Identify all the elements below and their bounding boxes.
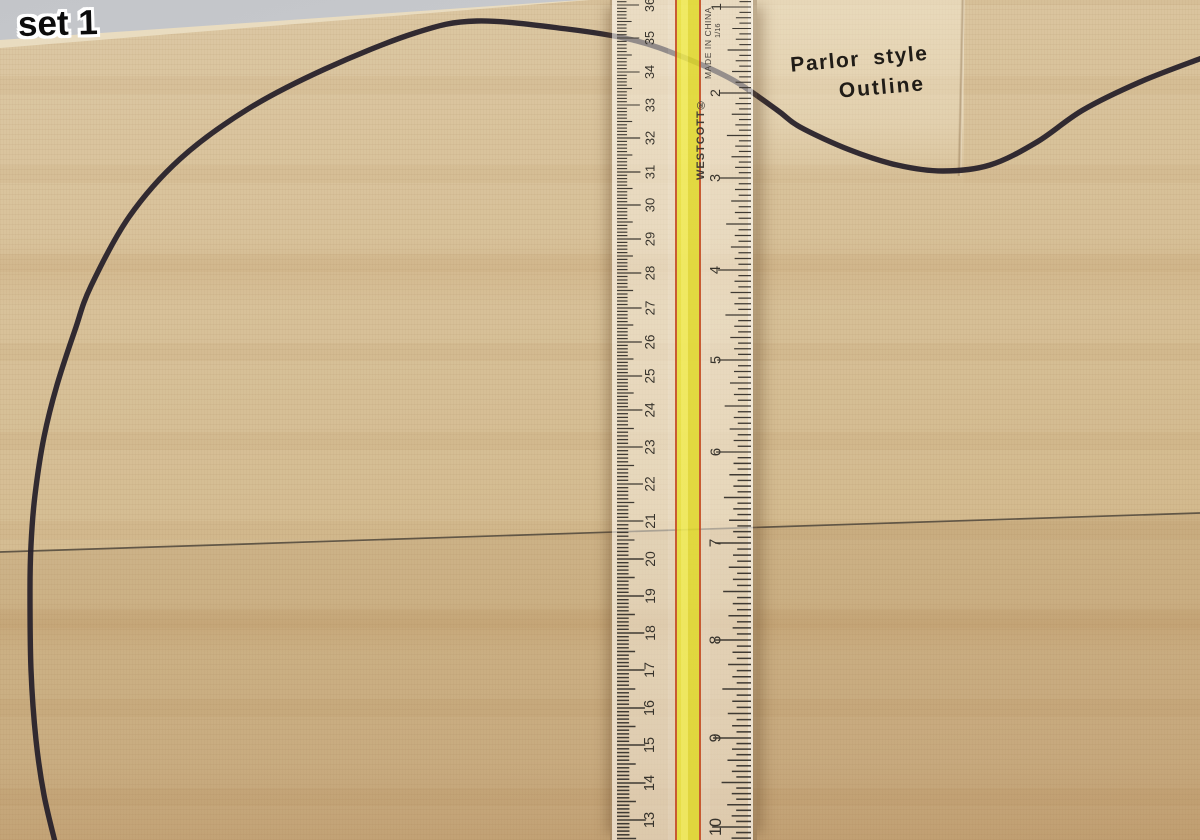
ruler-cm-number: 29 <box>643 232 658 247</box>
ruler-inch-number: 8 <box>708 635 725 644</box>
ruler-cm-number: 33 <box>643 98 658 112</box>
guitar-outline-drawing <box>0 0 1200 840</box>
ruler-inch-number: 5 <box>708 356 725 364</box>
ruler-brand-text: WESTCOTT® <box>695 112 707 180</box>
ruler-cm-number: 14 <box>642 775 658 791</box>
ruler-cm-number: 31 <box>643 165 658 179</box>
ruler-cm-number: 18 <box>642 625 658 641</box>
ruler-cm-number: 16 <box>642 700 658 716</box>
ruler-cm-number: 35 <box>643 31 657 45</box>
ruler-cm-number: 19 <box>642 588 658 604</box>
ruler-cm-number: 13 <box>642 812 658 828</box>
ruler-cm-number: 20 <box>642 551 658 567</box>
ruler-inch-number: 3 <box>708 174 724 182</box>
ruler-cm-number: 25 <box>643 369 658 384</box>
set-label: set 1 <box>17 3 98 45</box>
photo-stage: Parlor style Outline 3635343332313029282… <box>0 0 1200 840</box>
ruler-inch-number: 7 <box>708 539 725 548</box>
ruler-cm-number: 30 <box>643 198 658 212</box>
ruler-cm-number: 23 <box>643 439 658 454</box>
ruler-cm-number: 24 <box>643 402 658 418</box>
ruler-inch-number: 4 <box>708 266 724 274</box>
ruler: 3635343332313029282726252423222120191817… <box>610 0 757 840</box>
ruler-cm-number: 32 <box>643 131 658 145</box>
ruler-made-in-text: MADE IN CHINA <box>703 11 713 79</box>
ruler-cm-number: 27 <box>643 301 658 316</box>
guitar-centerline <box>0 513 1200 552</box>
ruler-cm-number: 21 <box>642 513 658 529</box>
ruler-cm-number: 17 <box>642 662 658 678</box>
ruler-cm-number: 34 <box>643 65 657 79</box>
ruler-cm-number: 26 <box>643 335 658 350</box>
ruler-inch-number: 10 <box>707 818 725 836</box>
ruler-inch-number: 6 <box>708 448 725 456</box>
ruler-scale: 3635343332313029282726252423222120191817… <box>610 0 757 840</box>
ruler-cm-number: 22 <box>643 476 658 491</box>
ruler-fraction-label: 1/16 <box>713 20 722 38</box>
ruler-cm-number: 15 <box>642 737 658 753</box>
ruler-inch-number: 2 <box>708 89 724 97</box>
ruler-cm-number: 36 <box>643 0 657 12</box>
ruler-cm-number: 28 <box>643 266 658 281</box>
ruler-inch-number: 9 <box>708 733 725 742</box>
